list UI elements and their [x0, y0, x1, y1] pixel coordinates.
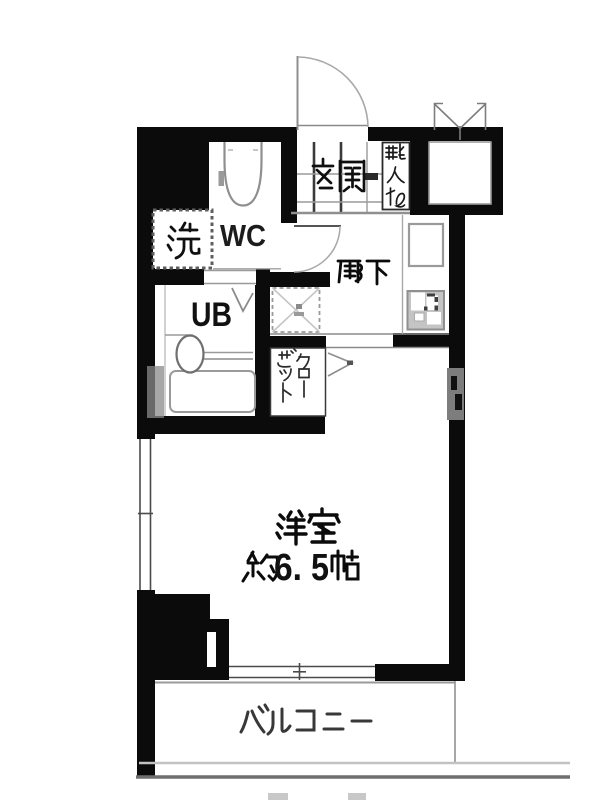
svg-text:UB: UB — [191, 296, 232, 334]
svg-text:5: 5 — [311, 547, 329, 589]
svg-text:WC: WC — [220, 218, 266, 253]
svg-text:6.: 6. — [274, 547, 302, 589]
